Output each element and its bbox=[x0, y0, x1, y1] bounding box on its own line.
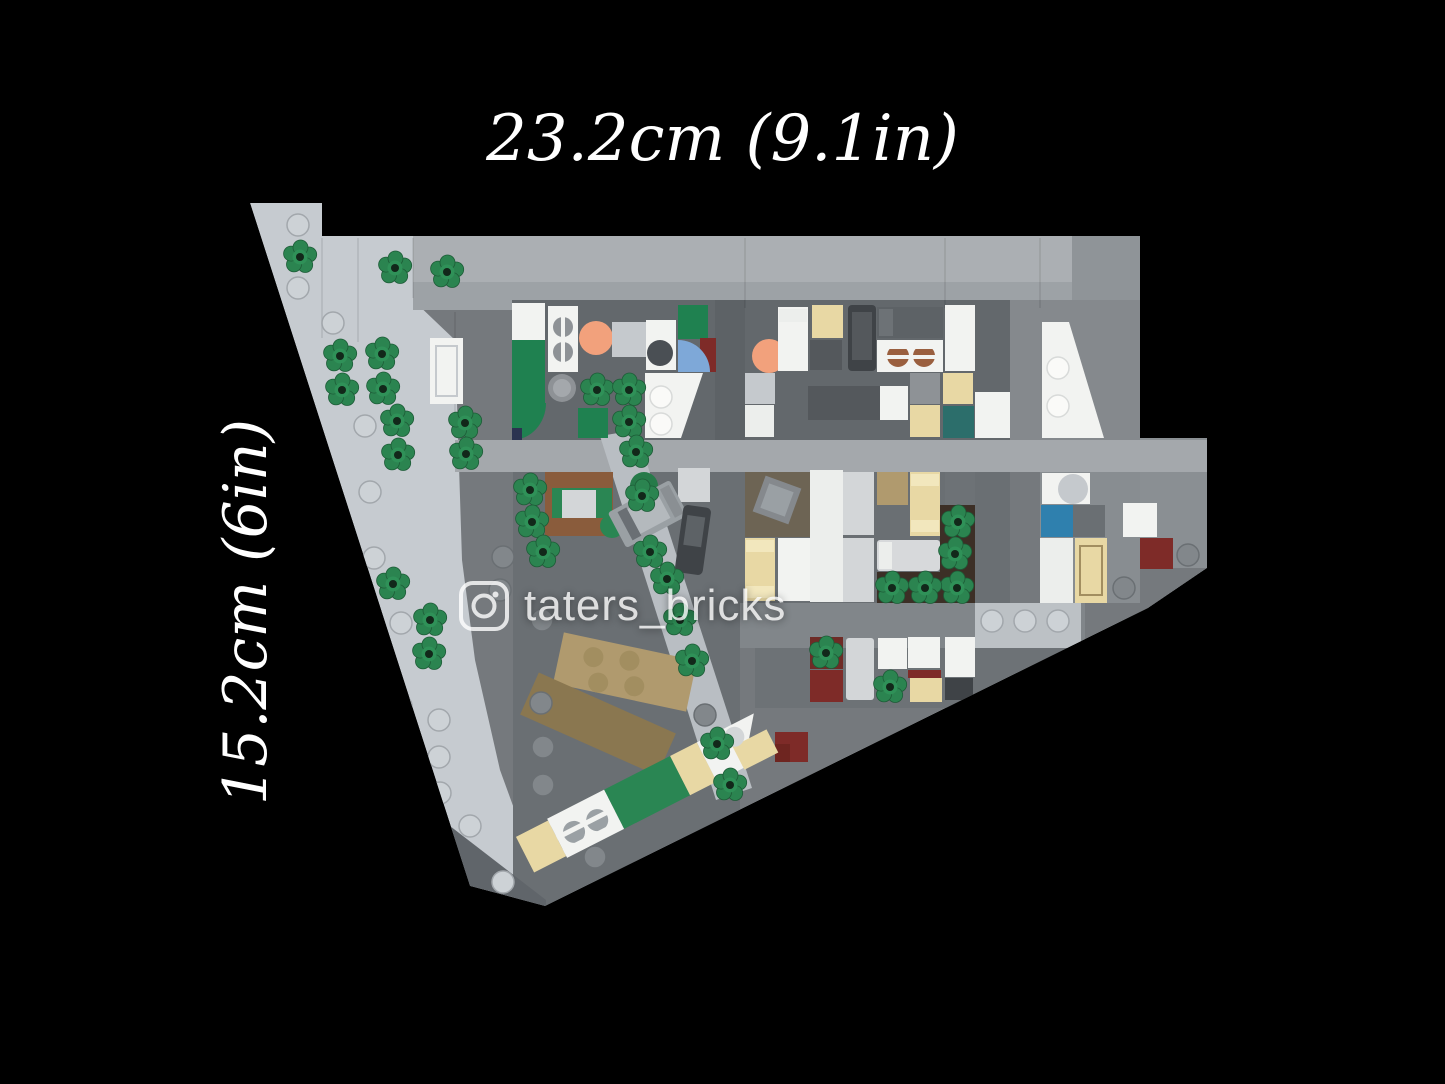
lego-brick bbox=[911, 474, 939, 486]
lego-brick bbox=[879, 309, 893, 336]
lego-brick bbox=[745, 405, 774, 437]
round-table bbox=[579, 321, 613, 355]
stud bbox=[363, 547, 385, 569]
stud bbox=[359, 481, 381, 503]
stud bbox=[981, 610, 1003, 632]
stud bbox=[1177, 544, 1199, 566]
lego-brick bbox=[746, 540, 774, 552]
lego-brick bbox=[678, 305, 708, 339]
lego-brick bbox=[877, 345, 943, 349]
stud bbox=[530, 692, 552, 714]
top-band-right bbox=[1072, 236, 1140, 310]
lego-brick bbox=[945, 305, 975, 371]
watermark-handle: taters_bricks bbox=[524, 581, 786, 631]
stud bbox=[1113, 577, 1135, 599]
dark-red-tile bbox=[810, 670, 843, 702]
stud bbox=[532, 736, 554, 758]
stud bbox=[390, 779, 412, 801]
stud bbox=[532, 774, 554, 796]
stud bbox=[322, 312, 344, 334]
stud bbox=[287, 277, 309, 299]
lego-brick bbox=[1123, 503, 1157, 537]
sofa-brick bbox=[808, 386, 880, 420]
stud bbox=[429, 782, 451, 804]
lego-brick bbox=[573, 306, 577, 372]
lego-brick bbox=[678, 468, 710, 502]
lego-brick bbox=[880, 386, 908, 420]
lego-brick bbox=[945, 472, 975, 505]
lego-brick bbox=[852, 312, 872, 360]
lego-brick bbox=[512, 303, 545, 343]
stud bbox=[584, 846, 606, 868]
stud bbox=[354, 415, 376, 437]
blue-tile bbox=[1041, 505, 1073, 537]
lego-brick bbox=[779, 309, 807, 322]
lego-brick bbox=[910, 373, 940, 404]
lego-brick bbox=[878, 638, 907, 669]
green-counter bbox=[512, 340, 545, 406]
lego-brick bbox=[1073, 505, 1105, 537]
bed-brick bbox=[846, 638, 874, 700]
lego-brick bbox=[1040, 538, 1073, 603]
lego-brick bbox=[578, 408, 608, 438]
stud bbox=[459, 815, 481, 837]
stud bbox=[390, 695, 412, 717]
lego-brick bbox=[812, 305, 843, 338]
lego-brick bbox=[877, 472, 908, 505]
lego-brick bbox=[562, 490, 596, 518]
lego-brick bbox=[1047, 357, 1069, 379]
street-wall-strip bbox=[715, 300, 745, 440]
lego-brick bbox=[1058, 474, 1088, 504]
white-bench bbox=[430, 338, 463, 404]
lego-brick bbox=[553, 379, 571, 397]
lego-brick bbox=[1047, 395, 1069, 417]
lego-brick bbox=[647, 340, 673, 366]
lego-brick bbox=[561, 306, 565, 372]
stud bbox=[390, 612, 412, 634]
lego-brick bbox=[975, 392, 1010, 438]
stud bbox=[287, 214, 309, 236]
instagram-icon bbox=[458, 580, 510, 632]
lego-brick bbox=[843, 472, 874, 535]
teal-tile bbox=[943, 406, 974, 438]
model-clip-group bbox=[250, 203, 1207, 910]
lego-brick bbox=[911, 520, 939, 532]
width-dimension-label: 23.2cm (9.1in) bbox=[0, 102, 1445, 176]
lego-brick bbox=[650, 386, 672, 408]
lego-brick bbox=[843, 538, 874, 602]
height-dimension-label: 15.2cm (6in) bbox=[208, 352, 284, 872]
lego-brick bbox=[908, 637, 940, 668]
stud bbox=[1014, 610, 1036, 632]
lego-brick bbox=[810, 340, 842, 370]
stud bbox=[492, 871, 514, 893]
lego-brick bbox=[650, 413, 672, 435]
stud bbox=[356, 649, 378, 671]
stud bbox=[428, 746, 450, 768]
lego-brick bbox=[612, 322, 648, 357]
lego-brick bbox=[549, 306, 553, 372]
stud bbox=[428, 709, 450, 731]
lego-brick bbox=[945, 678, 973, 700]
stud bbox=[1047, 610, 1069, 632]
lego-brick bbox=[908, 670, 941, 678]
product-dimension-image: 23.2cm (9.1in) 15.2cm (6in) taters_brick… bbox=[0, 0, 1445, 1084]
lego-brick bbox=[745, 373, 775, 404]
lego-brick bbox=[943, 373, 973, 404]
lego-brick bbox=[877, 355, 943, 359]
lego-brick bbox=[810, 470, 843, 602]
lego-brick bbox=[512, 428, 522, 440]
lego-brick bbox=[879, 542, 892, 569]
watermark: taters_bricks bbox=[458, 580, 786, 632]
stud bbox=[492, 546, 514, 568]
lego-brick bbox=[945, 637, 975, 677]
lego-brick bbox=[910, 678, 942, 702]
corridor-walkway bbox=[455, 440, 1207, 472]
lego-brick bbox=[910, 405, 940, 437]
stud bbox=[694, 704, 716, 726]
dark-red-tile bbox=[1140, 538, 1173, 569]
